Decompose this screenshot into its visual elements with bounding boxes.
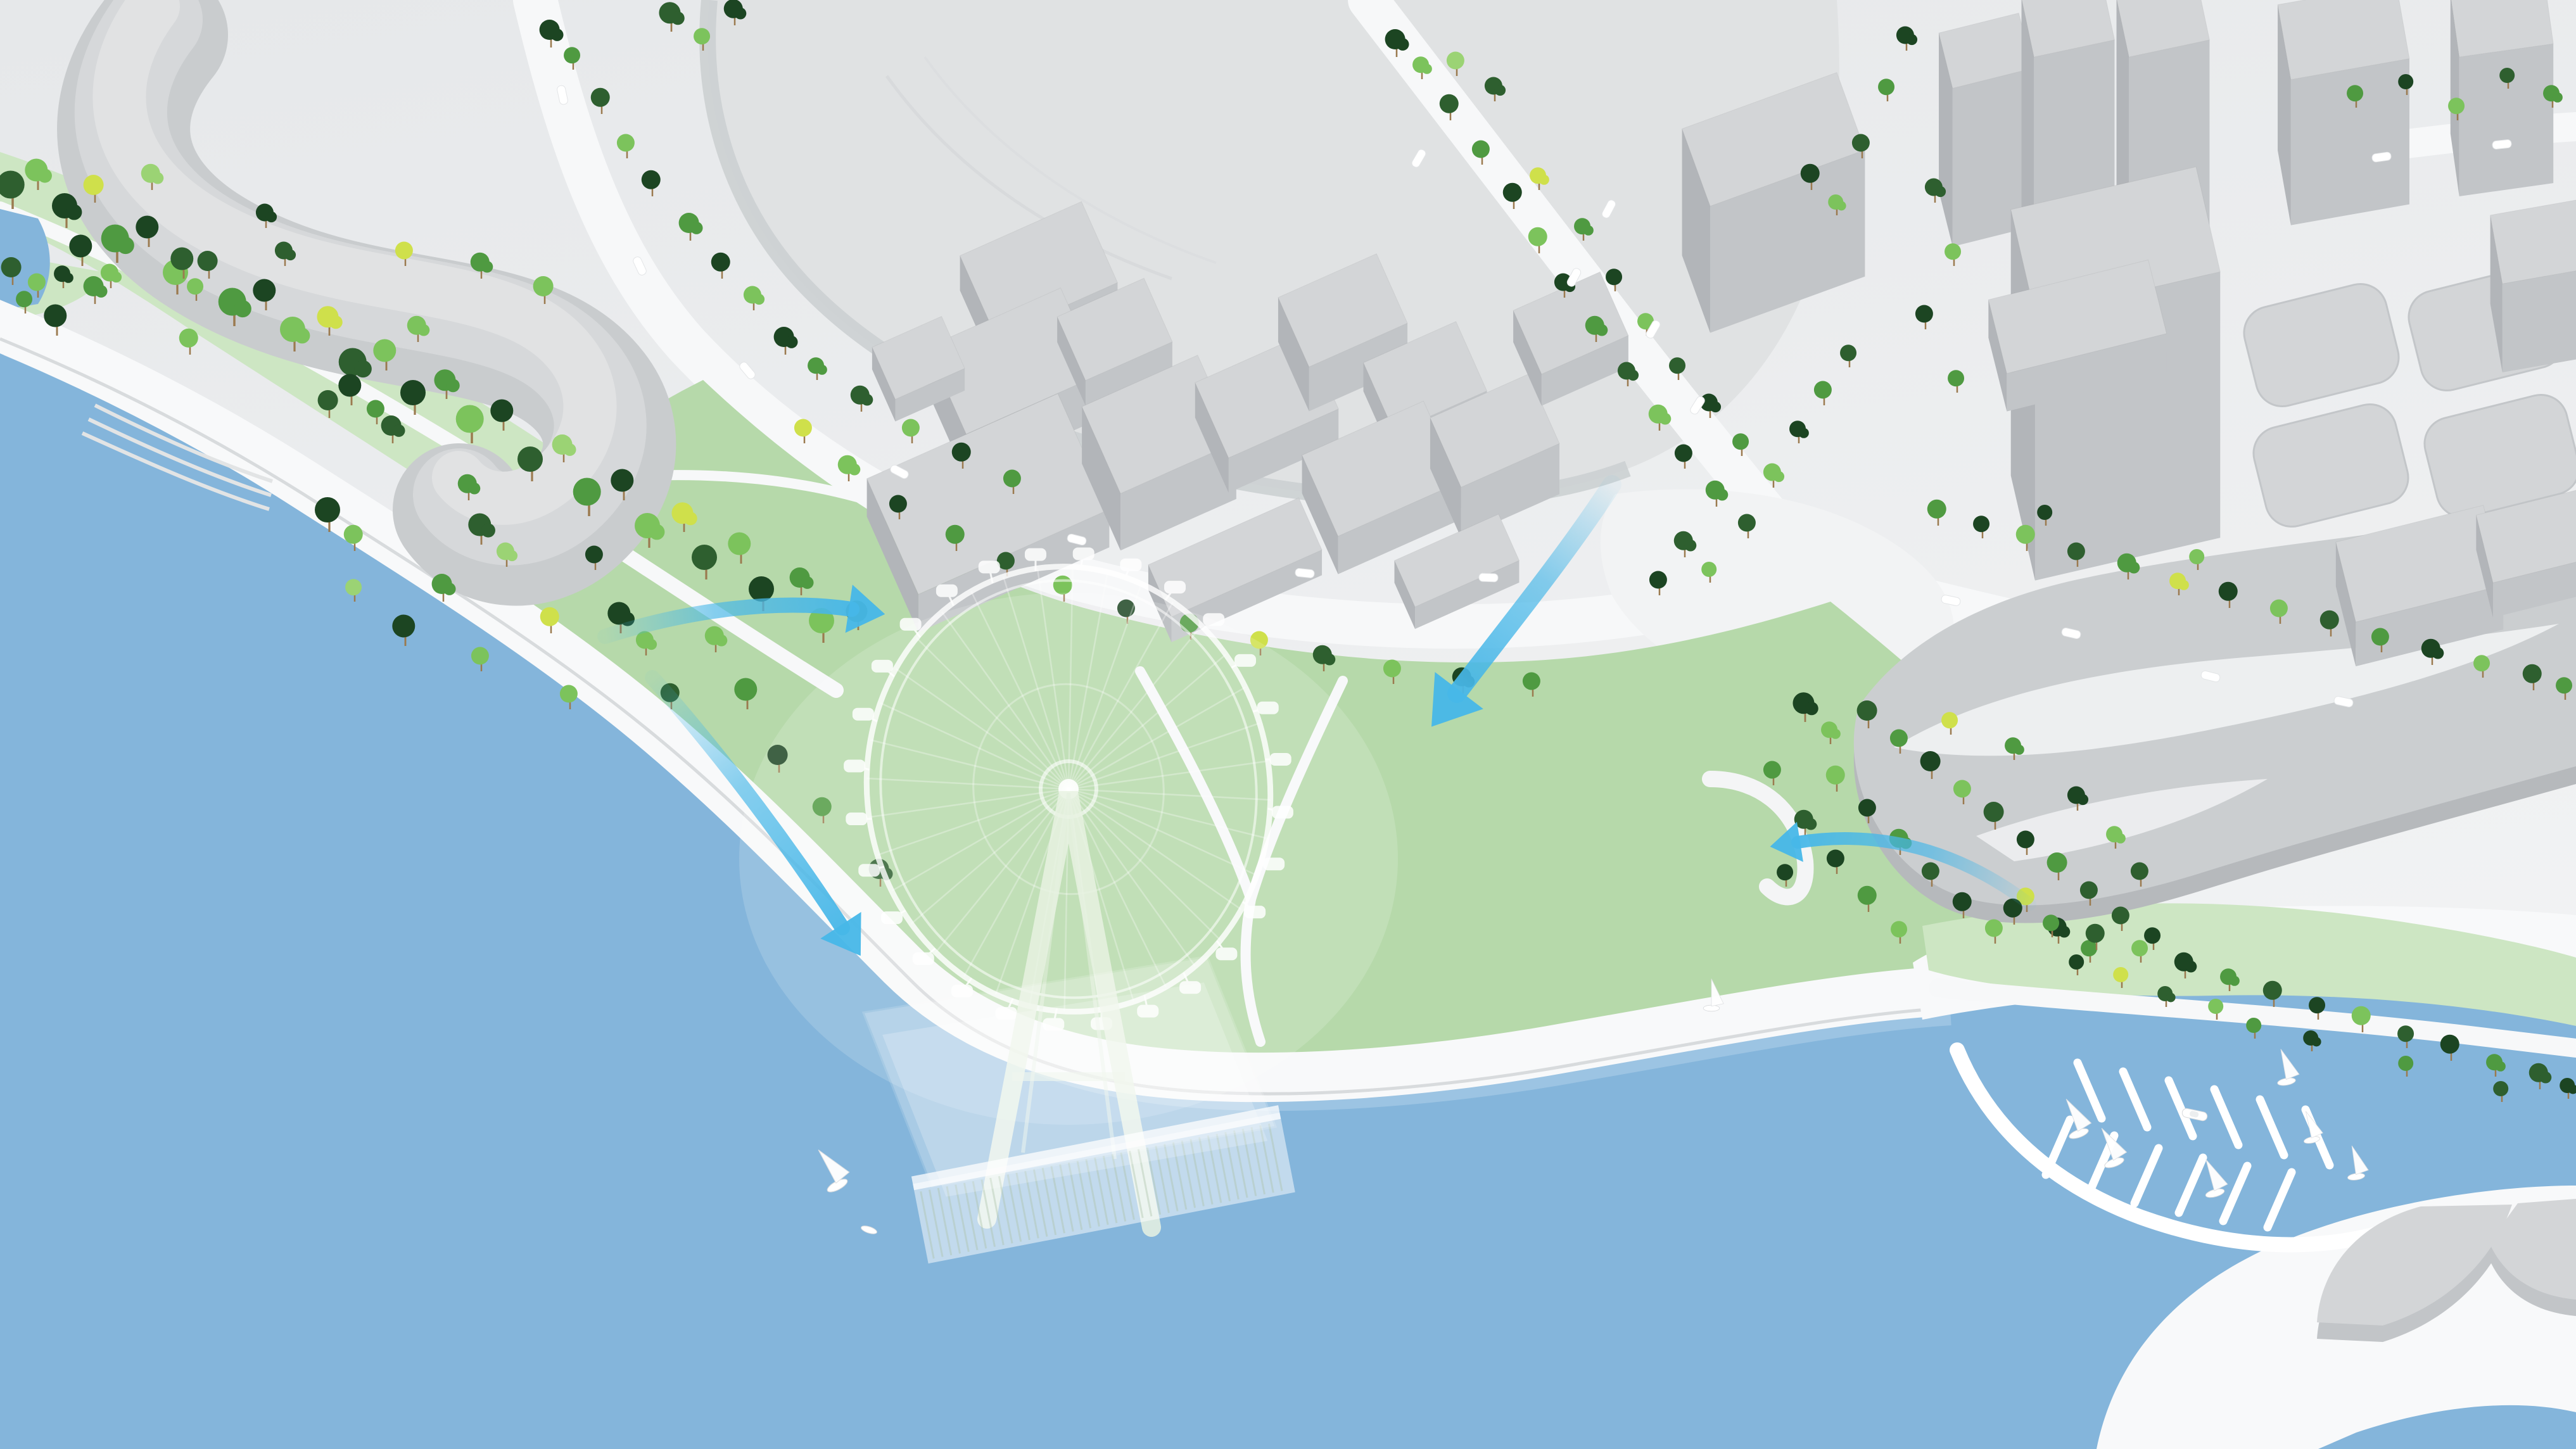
tree-crown xyxy=(952,443,971,462)
tree-crown xyxy=(1596,324,1608,336)
tree-crown xyxy=(2499,68,2515,83)
tree-crown xyxy=(2185,961,2197,973)
tree-crown xyxy=(1985,920,2003,937)
tree-crown xyxy=(694,28,710,44)
tree-crown xyxy=(1397,38,1409,51)
tree-crown xyxy=(1840,345,1856,361)
building-face xyxy=(2291,59,2409,225)
tree-crown xyxy=(266,212,277,222)
tree-crown xyxy=(1,257,22,277)
tree-crown xyxy=(456,405,484,433)
tree-crown xyxy=(1837,201,1846,211)
tree-crown xyxy=(684,512,697,525)
tree-crown xyxy=(373,339,396,362)
car xyxy=(2492,139,2511,149)
tree-crown xyxy=(728,533,751,555)
tree-crown xyxy=(785,336,798,348)
tree-crown xyxy=(1852,134,1870,152)
tree-crown xyxy=(2014,745,2024,755)
tree-crown xyxy=(1583,225,1594,236)
tree-crown xyxy=(2208,999,2223,1014)
tree-crown xyxy=(1495,85,1506,96)
tree-crown xyxy=(1003,470,1021,488)
tree-crown xyxy=(1858,886,1877,905)
tree-crown xyxy=(2078,794,2088,805)
tree-crown xyxy=(490,400,513,422)
tree-crown xyxy=(1738,514,1756,532)
tree-crown xyxy=(447,379,460,392)
tree-crown xyxy=(1503,183,1522,202)
tree-crown xyxy=(2047,852,2067,873)
tree-crown xyxy=(692,545,717,570)
tree-crown xyxy=(2347,85,2363,101)
tree-crown xyxy=(1659,413,1672,425)
tree-crown xyxy=(2352,1006,2371,1025)
tree-crown xyxy=(2179,580,2189,590)
tree-crown xyxy=(1830,729,1841,739)
tree-crown xyxy=(690,222,703,234)
tree-crown xyxy=(2043,914,2059,931)
tree-crown xyxy=(44,305,67,327)
tree-crown xyxy=(817,365,827,375)
tree-crown xyxy=(1935,186,1946,197)
car xyxy=(1479,573,1498,582)
tree-crown xyxy=(2553,92,2563,103)
tree-crown xyxy=(1801,164,1820,183)
tree-crown xyxy=(2270,600,2288,617)
tree-crown xyxy=(2016,525,2035,544)
tree-crown xyxy=(1523,673,1540,690)
tree-crown xyxy=(136,216,158,239)
tree-crown xyxy=(152,172,164,184)
tree-crown xyxy=(344,525,363,544)
tree-crown xyxy=(507,550,517,561)
tree-crown xyxy=(179,329,198,348)
tree-crown xyxy=(2059,926,2071,938)
tree-crown xyxy=(646,639,657,650)
tree-crown xyxy=(1539,175,1549,185)
tree-crown xyxy=(1716,489,1729,501)
tree-crown xyxy=(2263,981,2282,1000)
tree-crown xyxy=(861,394,873,406)
tree-crown xyxy=(1628,370,1639,381)
tree-crown xyxy=(1528,227,1547,246)
tree-crown xyxy=(395,242,413,260)
tree-crown xyxy=(1710,402,1721,412)
tree-crown xyxy=(481,261,493,273)
tree-crown xyxy=(285,250,296,260)
tree-crown xyxy=(1922,863,1939,880)
tree-crown xyxy=(1973,516,1989,532)
tree-crown xyxy=(2080,882,2098,899)
tree-crown xyxy=(801,576,814,589)
tree-crown xyxy=(329,315,343,329)
tree-crown xyxy=(170,248,193,270)
tree-crown xyxy=(2166,993,2176,1003)
tree-crown xyxy=(794,419,812,437)
tree-crown xyxy=(2473,655,2490,671)
tree-crown xyxy=(2230,976,2240,986)
tree-crown xyxy=(1675,445,1692,462)
tree-crown xyxy=(551,28,564,41)
tree-crown xyxy=(1324,654,1336,666)
tree-crown xyxy=(1984,802,2004,822)
tree-crown xyxy=(367,400,384,418)
tree-crown xyxy=(1669,357,1685,374)
tree-crown xyxy=(69,235,92,258)
tree-crown xyxy=(2086,924,2105,943)
tree-crown xyxy=(2440,1035,2459,1054)
tree-crown xyxy=(671,11,685,25)
tree-crown xyxy=(849,464,861,476)
tree-crown xyxy=(2496,1061,2506,1072)
tree-crown xyxy=(2131,940,2148,956)
tree-crown xyxy=(1606,269,1622,285)
tree-crown xyxy=(1383,660,1401,678)
tree-crown xyxy=(315,497,340,522)
tree-crown xyxy=(2397,1025,2414,1042)
tree-crown xyxy=(1915,305,1933,323)
tree-crown xyxy=(1805,702,1818,715)
tree-crown xyxy=(318,390,338,410)
tree-crown xyxy=(393,424,405,437)
tree-crown xyxy=(1773,471,1784,482)
tree-crown xyxy=(1953,780,1971,798)
tree-crown xyxy=(253,279,276,302)
tree-crown xyxy=(481,523,495,537)
tree-crown xyxy=(2320,611,2339,630)
tree-crown xyxy=(2523,664,2542,683)
tree-crown xyxy=(2398,1056,2413,1071)
tree-crown xyxy=(198,251,218,271)
tree-crown xyxy=(117,237,134,254)
tree-crown xyxy=(187,278,203,294)
tree-crown xyxy=(749,576,774,602)
tree-crown xyxy=(591,88,610,107)
tree-crown xyxy=(1891,921,1907,937)
building-face xyxy=(2459,44,2554,196)
tree-crown xyxy=(1701,562,1716,577)
tree-crown xyxy=(2398,74,2413,89)
tree-crown xyxy=(2312,1037,2321,1047)
tree-crown xyxy=(2069,954,2084,970)
tree-crown xyxy=(754,294,765,305)
tree-crown xyxy=(2131,863,2148,880)
tree-crown xyxy=(1907,34,1917,45)
tree-crown xyxy=(642,170,661,189)
tree-crown xyxy=(400,380,426,405)
tree-crown xyxy=(2219,582,2238,601)
tree-crown xyxy=(2037,505,2052,520)
tree-crown xyxy=(443,583,456,595)
masterplan-canvas xyxy=(0,0,2576,1449)
tree-crown xyxy=(540,607,559,626)
tree-crown xyxy=(2116,833,2126,844)
tree-crown xyxy=(28,274,46,291)
tree-crown xyxy=(95,285,108,298)
tree-crown xyxy=(2246,1018,2261,1033)
tree-crown xyxy=(295,328,310,344)
tree-crown xyxy=(1053,576,1072,595)
tree-crown xyxy=(1814,381,1832,399)
tree-crown xyxy=(1878,79,1894,95)
tree-crown xyxy=(111,272,122,282)
tree-crown xyxy=(355,360,372,377)
tree-crown xyxy=(1440,94,1459,113)
tree-crown xyxy=(2432,647,2444,659)
tree-crown xyxy=(564,443,576,456)
tree-crown xyxy=(1685,540,1697,552)
tree-crown xyxy=(889,495,907,513)
tree-crown xyxy=(2189,549,2204,564)
tree-crown xyxy=(1920,751,1941,771)
tree-crown xyxy=(1799,428,1809,438)
tree-crown xyxy=(1472,141,1490,158)
tree-crown xyxy=(573,478,601,506)
tree-crown xyxy=(2309,997,2325,1013)
tree-crown xyxy=(418,324,430,336)
tree-crown xyxy=(649,524,665,540)
tree-crown xyxy=(1953,892,1972,911)
tree-crown xyxy=(2371,628,2389,646)
tree-crown xyxy=(716,635,728,647)
tree-crown xyxy=(946,525,965,544)
tree-crown xyxy=(1827,850,1844,868)
car xyxy=(1295,568,1314,578)
tree-crown xyxy=(1805,818,1817,830)
tree-crown xyxy=(338,374,361,397)
tree-crown xyxy=(533,276,554,296)
tree-crown xyxy=(345,579,362,595)
tree-crown xyxy=(63,273,73,283)
tree-crown xyxy=(392,615,415,638)
tree-crown xyxy=(234,300,251,317)
tree-crown xyxy=(2540,1072,2552,1084)
tree-crown xyxy=(16,291,32,307)
tree-crown xyxy=(2113,967,2128,982)
tree-crown xyxy=(1948,370,1964,386)
tree-crown xyxy=(734,678,757,701)
tree-crown xyxy=(1422,64,1432,74)
tree-crown xyxy=(2067,543,2085,560)
tree-crown xyxy=(711,253,730,272)
tree-crown xyxy=(2017,831,2034,849)
tree-crown xyxy=(902,419,920,437)
tree-crown xyxy=(2144,927,2160,944)
tree-crown xyxy=(564,47,580,63)
tree-crown xyxy=(2556,677,2572,693)
tree-crown xyxy=(1927,500,1946,519)
tree-crown xyxy=(1649,571,1667,589)
tree-crown xyxy=(735,8,747,20)
tree-crown xyxy=(585,546,603,564)
tree-crown xyxy=(1941,712,1958,728)
tree-crown xyxy=(469,483,481,495)
tree-crown xyxy=(1763,761,1781,779)
tree-crown xyxy=(471,647,489,665)
tree-crown xyxy=(1447,52,1464,70)
tree-crown xyxy=(2448,98,2465,114)
tree-crown xyxy=(617,134,635,152)
tree-crown xyxy=(2128,562,2140,574)
tree-crown xyxy=(611,469,633,492)
tree-crown xyxy=(38,168,52,182)
tree-crown xyxy=(1777,864,1793,880)
tree-crown xyxy=(1890,730,1908,747)
tree-crown xyxy=(1945,243,1961,260)
tree-crown xyxy=(1857,700,1877,721)
tree-crown xyxy=(84,175,104,195)
tree-crown xyxy=(2493,1081,2508,1096)
tree-crown xyxy=(1732,433,1749,450)
tree-crown xyxy=(1826,766,1845,785)
tree-crown xyxy=(67,205,82,220)
tree-crown xyxy=(2112,907,2129,925)
tree-crown xyxy=(517,446,543,472)
tree-crown xyxy=(1858,799,1876,817)
tree-crown xyxy=(560,685,578,703)
